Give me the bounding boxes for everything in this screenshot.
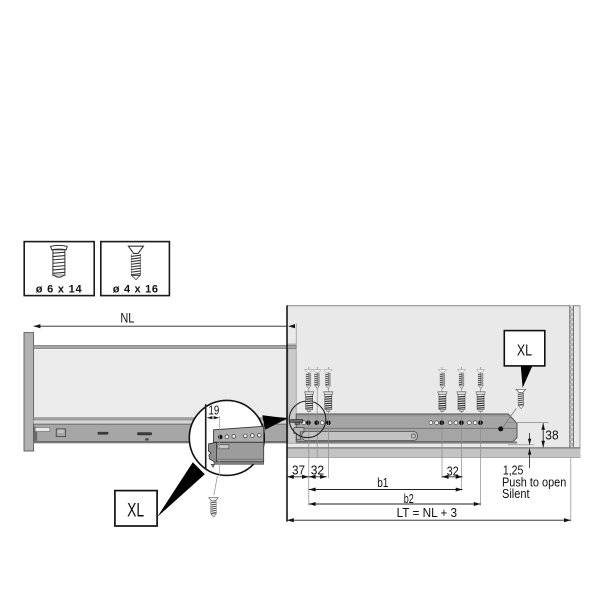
- svg-text:37: 37: [292, 462, 305, 477]
- svg-text:32: 32: [311, 462, 324, 477]
- svg-text:ø 6 x 14: ø 6 x 14: [36, 283, 83, 295]
- svg-text:b2: b2: [404, 492, 414, 506]
- svg-text:Silent: Silent: [502, 487, 530, 501]
- svg-text:XL: XL: [517, 343, 532, 360]
- svg-text:NL: NL: [120, 310, 134, 326]
- svg-text:XL: XL: [127, 499, 144, 521]
- svg-text:38: 38: [545, 427, 558, 442]
- svg-text:ø 4 x 16: ø 4 x 16: [113, 283, 158, 295]
- svg-text:19: 19: [209, 404, 220, 418]
- svg-text:LT = NL + 3: LT = NL + 3: [397, 506, 458, 520]
- svg-text:b1: b1: [377, 476, 388, 490]
